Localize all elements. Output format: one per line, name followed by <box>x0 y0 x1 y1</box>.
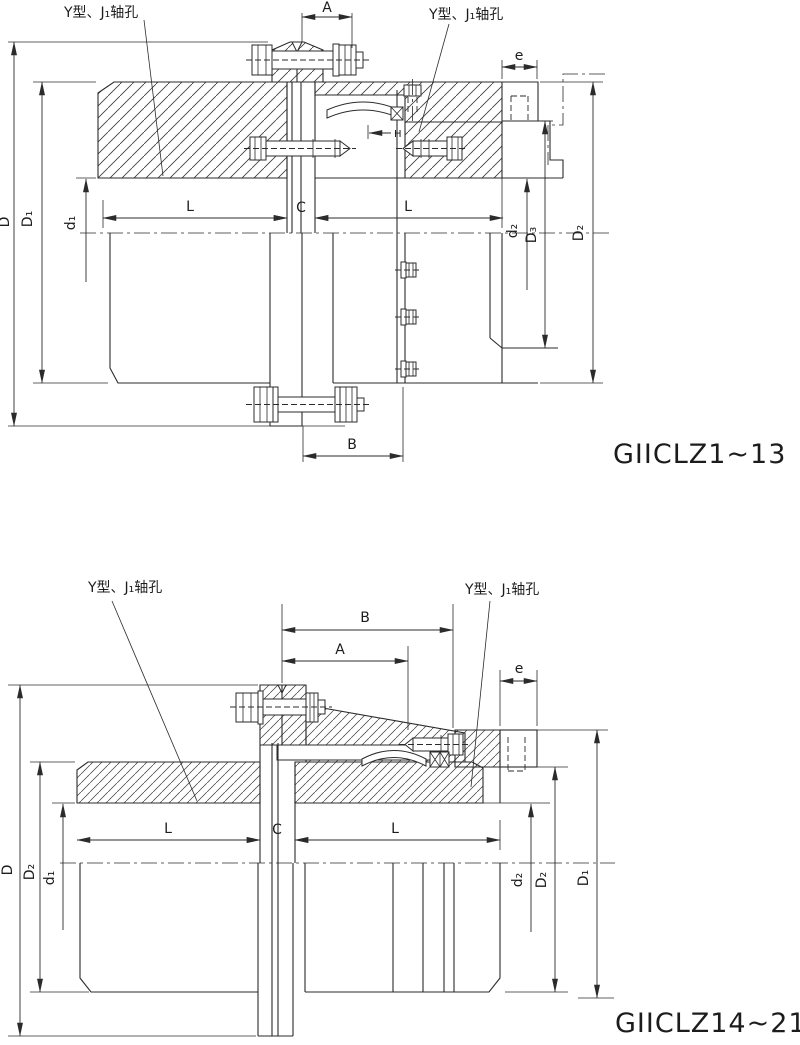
fig2-title: GIICLZ14~21 <box>615 1008 800 1039</box>
fig2-dim-b: B <box>360 610 370 626</box>
fig2-labels: Y型、J₁轴孔 Y型、J₁轴孔 B A e D D₂ d₁ L C L d₂ D… <box>0 580 800 1039</box>
fig1-flange-small-bolts <box>401 262 416 377</box>
fig1-dim-d1-small: d₁ <box>63 216 79 231</box>
fig1-dim-d-outer: D <box>0 217 13 228</box>
fig1-dim-d2-small: d₂ <box>505 224 521 239</box>
drawing-sheet: Y型、J₁轴孔 Y型、J₁轴孔 A e D D₁ d₁ L C L B d₂ D… <box>0 0 800 1045</box>
fig1-shaft-label-right: Y型、J₁轴孔 <box>428 7 503 23</box>
fig2-dim-l-right: L <box>391 821 399 837</box>
fig2-dim-d-outer: D <box>0 865 16 876</box>
fig1-title: GIICLZ1~13 <box>613 439 786 470</box>
fig1-dim-l-left: L <box>186 199 194 215</box>
fig1-dim-l-right: L <box>404 199 412 215</box>
fig1-dim-c: C <box>296 200 306 216</box>
fig1-dim-e: e <box>515 48 524 64</box>
fig2-dim-d1-cap: D₁ <box>576 870 592 886</box>
figure-giiclz1-13: Y型、J₁轴孔 Y型、J₁轴孔 A e D D₁ d₁ L C L B d₂ D… <box>0 0 800 520</box>
fig2-dim-d2-left: D₂ <box>22 864 38 880</box>
fig2-dim-d1-small: d₁ <box>42 871 58 886</box>
fig2-dim-a: A <box>335 642 345 658</box>
fig2-dim-d2-right: D₂ <box>534 872 550 888</box>
fig1-dim-h: H <box>394 129 402 140</box>
fig1-labels: Y型、J₁轴孔 Y型、J₁轴孔 A e D D₁ d₁ L C L B d₂ D… <box>0 0 786 470</box>
fig1-dim-d3-cap: D₃ <box>524 227 540 243</box>
fig2-dim-c: C <box>272 822 282 838</box>
fig2-dim-d2-small: d₂ <box>510 873 526 888</box>
fig2-dim-l-left: L <box>164 821 172 837</box>
figure-giiclz14-21: Y型、J₁轴孔 Y型、J₁轴孔 B A e D D₂ d₁ L C L d₂ D… <box>0 520 800 1045</box>
fig2-shaft-label-left: Y型、J₁轴孔 <box>87 580 162 596</box>
fig1-shaft-label-left: Y型、J₁轴孔 <box>63 5 138 21</box>
fig1-dim-b: B <box>347 437 357 453</box>
fig2-shaft-label-right: Y型、J₁轴孔 <box>464 582 539 598</box>
fig1-dim-d1-cap: D₁ <box>20 211 36 227</box>
fig2-dim-e: e <box>515 661 524 677</box>
fig1-dim-a: A <box>322 0 332 16</box>
fig1-dim-d2-cap: D₂ <box>571 225 587 241</box>
